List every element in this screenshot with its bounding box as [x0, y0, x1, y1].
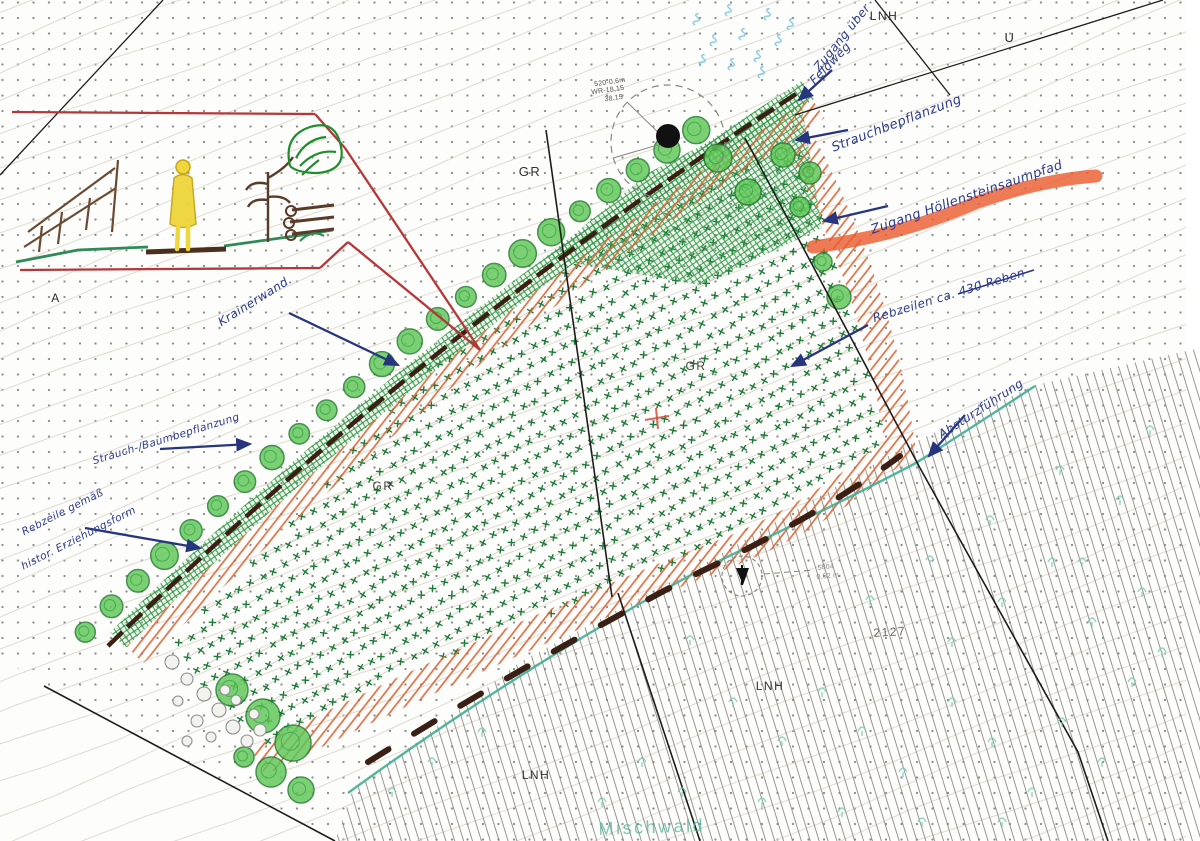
- person-figure-head: [176, 160, 190, 174]
- person-figure-body: [170, 175, 196, 228]
- person-figure-leg: [177, 227, 178, 249]
- label-gr-left: GR: [373, 479, 394, 493]
- site-plan-svg: LNHUGRGRGRLNHLNH2127AMischwaldZugang übe…: [0, 0, 1200, 841]
- label-lnh-mid: LNH: [756, 679, 785, 693]
- label-section-a: A: [51, 291, 61, 305]
- label-mischwald: Mischwald: [598, 815, 705, 839]
- label-parcel-2127: 2127: [873, 624, 906, 640]
- label-gr-mid: GR: [686, 359, 707, 373]
- label-lnh-low: LNH: [522, 768, 551, 782]
- scanned-site-plan: LNHUGRGRGRLNHLNH2127AMischwaldZugang übe…: [0, 0, 1200, 841]
- label-lnh-top: LNH: [870, 9, 899, 23]
- label-gr-top: GR: [519, 164, 542, 179]
- label-u: U: [1005, 30, 1016, 45]
